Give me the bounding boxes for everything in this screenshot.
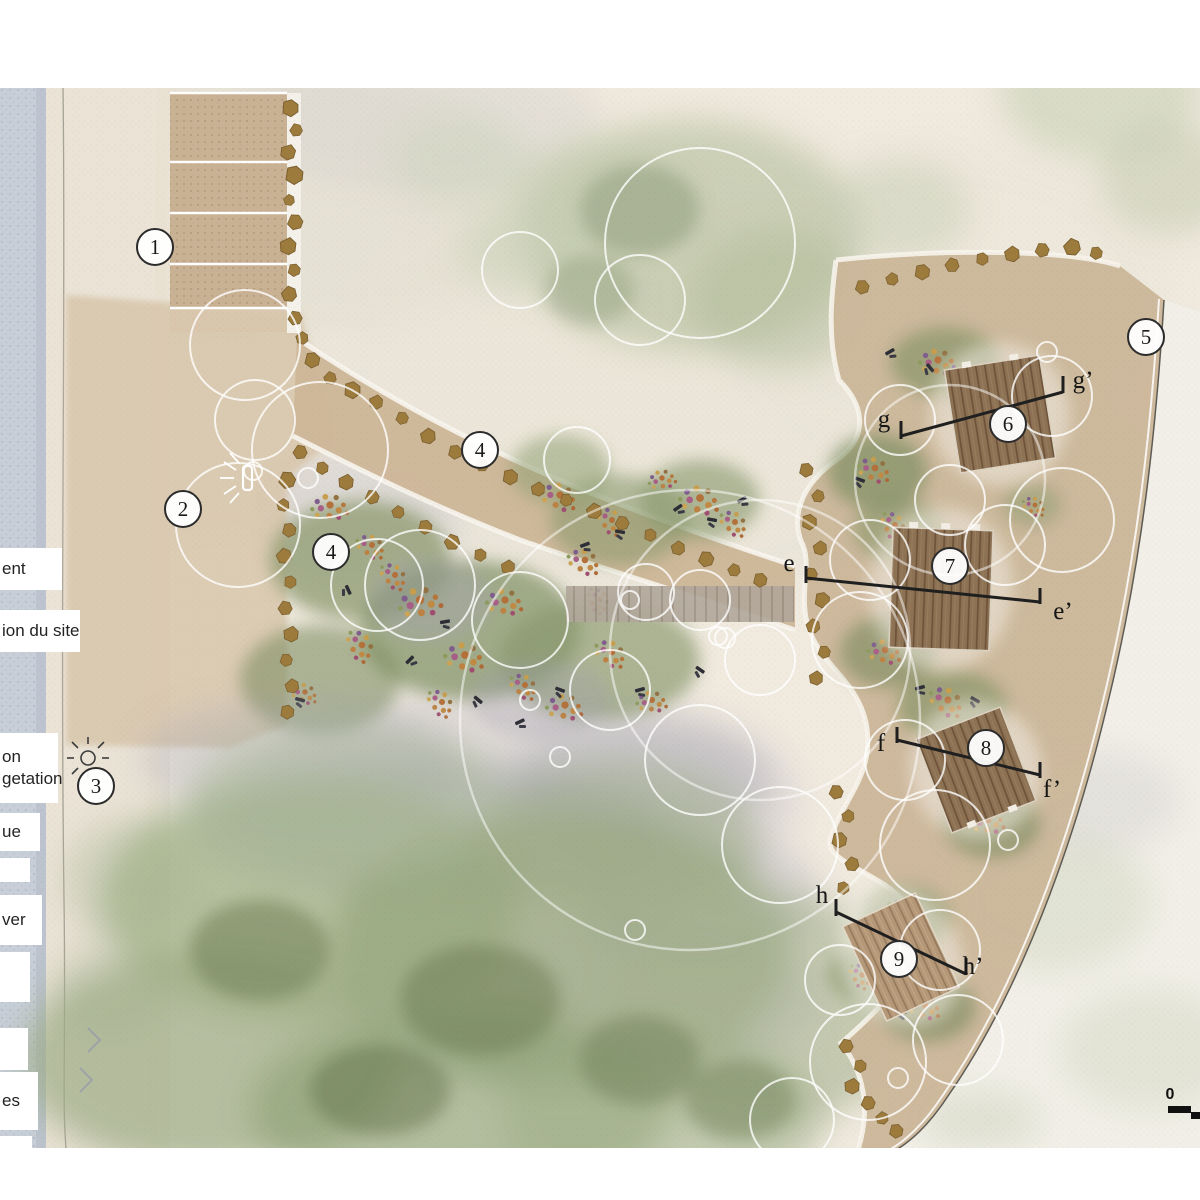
section-label-e-prime: e’ xyxy=(1053,598,1072,626)
section-label-g-prime: g’ xyxy=(1073,367,1094,395)
site-plan-artwork xyxy=(0,0,1200,1200)
bottom-margin xyxy=(0,1148,1200,1200)
legend-fragment-1-text: ent xyxy=(2,558,62,580)
marker-3-label: 3 xyxy=(91,774,102,799)
section-label-h-text: h xyxy=(816,882,829,909)
marker-4-upper: 4 xyxy=(461,431,499,469)
section-label-e-prime-text: e’ xyxy=(1053,598,1072,625)
legend-fragment-4: ue xyxy=(0,813,40,851)
paper-grain xyxy=(0,88,1200,1148)
site-plan-page: ent ion du site on getation ue ver es 1 … xyxy=(0,0,1200,1200)
scale-zero-label: 0 xyxy=(1166,1086,1175,1104)
marker-4-lower: 4 xyxy=(312,533,350,571)
marker-4-upper-label: 4 xyxy=(475,438,486,463)
section-label-h: h xyxy=(816,882,829,910)
marker-8-label: 8 xyxy=(981,736,992,761)
marker-4-lower-label: 4 xyxy=(326,540,337,565)
marker-7: 7 xyxy=(931,547,969,585)
legend-box-empty-3 xyxy=(0,1028,28,1070)
marker-5-label: 5 xyxy=(1141,325,1152,350)
section-label-e-text: e xyxy=(783,550,794,577)
legend-fragment-2: ion du site xyxy=(0,610,80,652)
section-label-g-prime-text: g’ xyxy=(1073,367,1094,394)
legend-fragment-5: ver xyxy=(0,895,42,945)
top-margin xyxy=(0,0,1200,88)
legend-fragment-3-line1: on xyxy=(2,746,58,768)
legend-box-empty-4 xyxy=(0,1136,32,1148)
legend-fragment-6-text: es xyxy=(2,1090,38,1112)
legend-fragment-2-text: ion du site xyxy=(2,620,80,642)
section-label-g: g xyxy=(878,406,891,434)
section-label-h-prime: h’ xyxy=(963,953,984,981)
legend-fragment-6: es xyxy=(0,1072,38,1130)
marker-9: 9 xyxy=(880,940,918,978)
legend-fragment-3-line2: getation xyxy=(2,768,58,790)
section-label-e: e xyxy=(783,550,794,578)
section-label-h-prime-text: h’ xyxy=(963,953,984,980)
legend-box-empty-2 xyxy=(0,952,30,1002)
legend-fragment-1: ent xyxy=(0,548,62,590)
marker-7-label: 7 xyxy=(945,554,956,579)
scale-zero-text: 0 xyxy=(1166,1086,1175,1103)
section-label-f-text: f xyxy=(877,730,885,757)
marker-1-label: 1 xyxy=(150,235,161,260)
section-label-f-prime-text: f’ xyxy=(1043,776,1061,803)
marker-1: 1 xyxy=(136,228,174,266)
marker-5: 5 xyxy=(1127,318,1165,356)
marker-2-label: 2 xyxy=(178,497,189,522)
marker-8: 8 xyxy=(967,729,1005,767)
section-label-g-text: g xyxy=(878,406,891,433)
legend-fragment-3: on getation xyxy=(0,733,58,803)
legend-fragment-4-text: ue xyxy=(2,821,40,843)
section-label-f-prime: f’ xyxy=(1043,776,1061,804)
section-label-f: f xyxy=(877,730,885,758)
legend-fragment-5-text: ver xyxy=(2,909,42,931)
marker-3: 3 xyxy=(77,767,115,805)
legend-box-empty-1 xyxy=(0,858,30,882)
marker-9-label: 9 xyxy=(894,947,905,972)
marker-6: 6 xyxy=(989,405,1027,443)
marker-2: 2 xyxy=(164,490,202,528)
marker-6-label: 6 xyxy=(1003,412,1014,437)
